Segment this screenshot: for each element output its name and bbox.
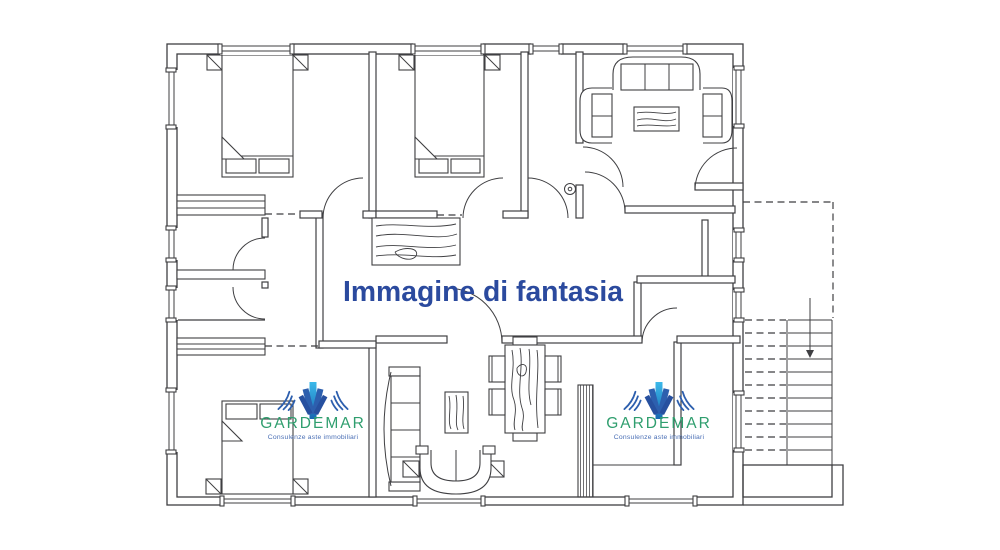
watermark-text: Immagine di fantasia <box>343 276 624 308</box>
dining-living-set <box>384 337 593 497</box>
gardemar-logo-right: GARDEMAR Consulenze aste immobiliari <box>606 382 712 441</box>
living-room-set <box>580 57 732 143</box>
bed-top-middle <box>399 55 500 177</box>
staircase <box>743 298 843 505</box>
gardemar-tagline-text: Consulenze aste immobiliari <box>614 434 705 441</box>
wardrobe-bands <box>177 195 265 355</box>
bed-top-left <box>207 55 308 177</box>
down-arrow-icon <box>806 298 814 358</box>
door-arcs <box>233 147 737 343</box>
dashed-lines <box>265 202 833 346</box>
cabinet-strip <box>578 385 593 497</box>
floor-plan: Immagine di fantasia GARDEMAR Consulenze… <box>0 0 1000 550</box>
hall-rug <box>372 218 460 265</box>
gardemar-brand-text: GARDEMAR <box>260 415 366 432</box>
listing-image: Immagine di fantasia GARDEMAR Consulenze… <box>0 0 1000 550</box>
gardemar-beams-icon <box>624 382 693 419</box>
gardemar-tagline-text: Consulenze aste immobiliari <box>268 434 359 441</box>
gardemar-brand-text: GARDEMAR <box>606 415 712 432</box>
